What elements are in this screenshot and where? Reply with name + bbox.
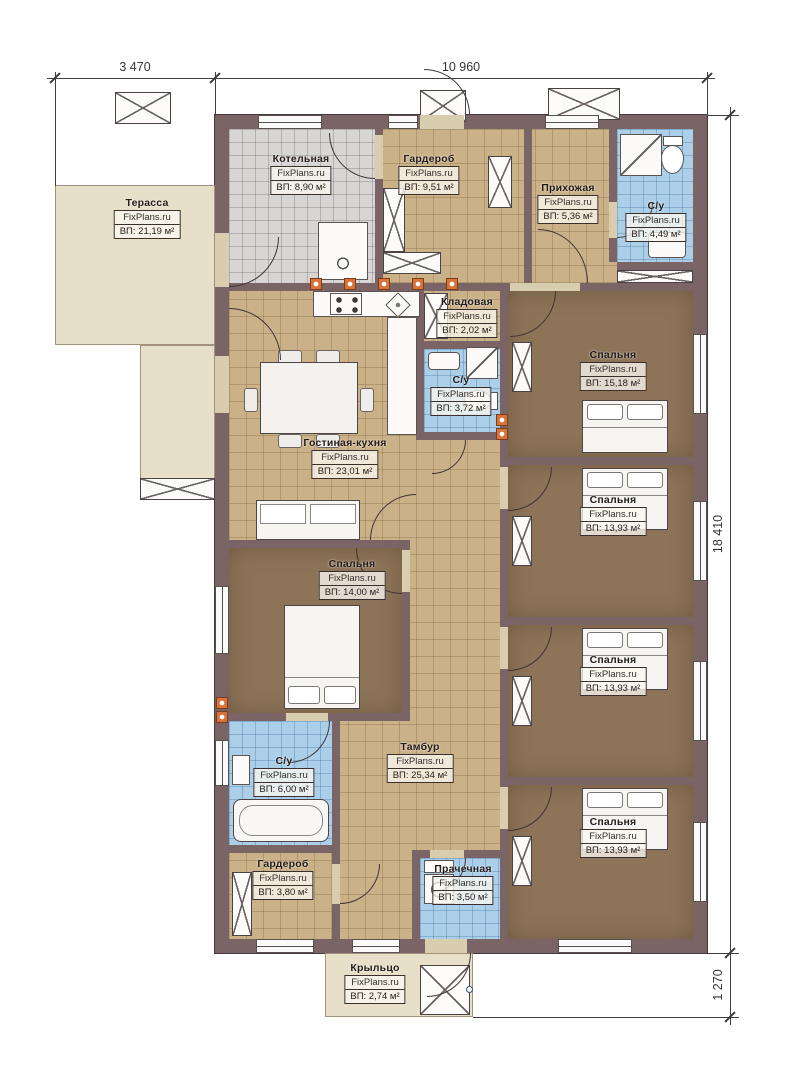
vent	[412, 278, 424, 290]
entry-door-arc-top	[424, 69, 470, 115]
door-opening	[500, 627, 508, 669]
dimension-label-porch-depth: 1 270	[711, 955, 725, 1015]
stove-icon	[330, 293, 362, 315]
closet	[488, 156, 512, 208]
watermark: FixPlans.ru	[320, 572, 385, 586]
vent	[216, 711, 228, 723]
dining-set	[244, 350, 374, 448]
sink-icon	[428, 352, 460, 370]
closet	[512, 342, 532, 392]
watermark: FixPlans.ru	[431, 388, 490, 402]
roof-symbol-left	[115, 92, 171, 124]
room-label-wardrobe-bottom: Гардероб FixPlans.ruВП: 3,80 м²	[252, 858, 313, 900]
room-label-bath-bottom: С/у FixPlans.ruВП: 6,00 м²	[253, 755, 314, 797]
watermark: FixPlans.ru	[581, 668, 646, 682]
door-opening	[430, 850, 464, 858]
door-opening	[375, 135, 383, 179]
closet	[617, 270, 693, 283]
room-label-bedroom-4: Спальня FixPlans.ruВП: 13,93 м²	[580, 816, 647, 858]
toilet-icon	[660, 136, 686, 176]
window	[693, 334, 707, 414]
room-label-bath-top: С/у FixPlans.ruВП: 4,49 м²	[625, 200, 686, 242]
dimension-line-top	[47, 78, 715, 79]
partition-wall	[508, 777, 693, 785]
door-opening	[420, 115, 464, 129]
extension-line	[55, 72, 56, 186]
window	[352, 939, 400, 953]
partition-wall	[332, 721, 340, 939]
boiler-unit	[318, 222, 368, 280]
vent	[496, 428, 508, 440]
vent	[310, 278, 322, 290]
shower-icon	[620, 134, 662, 176]
dimension-label-terrace-width: 3 470	[95, 60, 175, 74]
window	[558, 939, 632, 953]
window	[693, 501, 707, 581]
door-opening	[332, 864, 340, 904]
door-opening	[609, 202, 617, 238]
vent	[216, 697, 228, 709]
bed	[582, 400, 668, 453]
door-opening	[500, 467, 508, 509]
door-opening	[215, 356, 229, 413]
watermark: FixPlans.ru	[437, 310, 496, 324]
watermark: FixPlans.ru	[313, 451, 378, 465]
partition-wall	[229, 845, 332, 853]
kitchen-counter	[387, 317, 417, 435]
dimension-label-house-width: 10 960	[421, 60, 501, 74]
floor-plan: 3 470 10 960 18 410 1 270	[0, 0, 792, 1080]
watermark: FixPlans.ru	[399, 167, 458, 181]
chair	[244, 388, 258, 412]
room-label-pantry: Кладовая FixPlans.ruВП: 2,02 м²	[436, 296, 497, 338]
watermark: FixPlans.ru	[581, 508, 646, 522]
partition-wall	[617, 262, 693, 270]
watermark: FixPlans.ru	[345, 976, 404, 990]
vent	[496, 414, 508, 426]
sink-icon	[232, 755, 250, 785]
watermark: FixPlans.ru	[626, 214, 685, 228]
window	[693, 661, 707, 741]
partition-wall	[508, 457, 693, 465]
room-label-bedroom-left: Спальня FixPlans.ruВП: 14,00 м²	[319, 558, 386, 600]
partition-wall	[500, 291, 508, 939]
extension-line	[473, 1017, 739, 1018]
door-opening	[215, 233, 229, 287]
bed	[284, 605, 360, 709]
dimension-line-right	[730, 107, 731, 1025]
terrace-side-strip	[140, 345, 215, 500]
closet	[512, 676, 532, 726]
room-label-terrace: Терасса FixPlans.ruВП: 21,19 м²	[114, 197, 181, 239]
watermark: FixPlans.ru	[433, 877, 492, 891]
closet	[383, 188, 405, 252]
extension-line	[707, 115, 739, 116]
room-label-porch: Крыльцо FixPlans.ruВП: 2,74 м²	[344, 962, 405, 1004]
room-label-hallway: Прихожая FixPlans.ruВП: 5,36 м²	[537, 182, 598, 224]
window	[215, 740, 229, 786]
watermark: FixPlans.ru	[253, 872, 312, 886]
canopy-node	[466, 986, 473, 993]
vent	[344, 278, 356, 290]
room-label-living-kitchen: Гостиная-кухня FixPlans.ruВП: 23,01 м²	[303, 437, 386, 479]
room-label-bedroom-1: Спальня FixPlans.ruВП: 15,18 м²	[580, 349, 647, 391]
window	[256, 939, 314, 953]
window	[693, 822, 707, 902]
chair	[360, 388, 374, 412]
dimension-label-house-depth: 18 410	[711, 504, 725, 564]
window	[258, 115, 322, 129]
terrace-window-symbol	[140, 478, 215, 500]
partition-wall	[229, 283, 693, 291]
watermark: FixPlans.ru	[254, 769, 313, 783]
watermark: FixPlans.ru	[271, 167, 330, 181]
room-label-wardrobe-top: Гардероб FixPlans.ruВП: 9,51 м²	[398, 153, 459, 195]
vent	[378, 278, 390, 290]
vent	[446, 278, 458, 290]
partition-wall	[524, 129, 532, 287]
partition-wall	[412, 858, 420, 939]
sofa	[256, 500, 360, 540]
partition-wall	[508, 617, 693, 625]
closet	[232, 872, 252, 936]
watermark: FixPlans.ru	[538, 196, 597, 210]
window	[545, 115, 599, 129]
room-label-bath-mid: С/у FixPlans.ruВП: 3,72 м²	[430, 374, 491, 416]
dining-table	[260, 362, 358, 434]
window	[215, 586, 229, 654]
door-opening	[500, 787, 508, 829]
room-label-boiler: Котельная FixPlans.ruВП: 8,90 м²	[270, 153, 331, 195]
room-label-tambour: Тамбур FixPlans.ruВП: 25,34 м²	[387, 741, 454, 783]
room-label-laundry: Прачечная FixPlans.ruВП: 3,50 м²	[432, 863, 493, 905]
window	[388, 115, 418, 129]
door-opening	[425, 939, 467, 953]
watermark: FixPlans.ru	[388, 755, 453, 769]
chair	[278, 434, 302, 448]
watermark: FixPlans.ru	[581, 830, 646, 844]
door-opening	[536, 283, 580, 291]
bathtub	[233, 799, 329, 842]
extension-line	[707, 953, 739, 954]
door-opening	[286, 713, 328, 721]
room-label-bedroom-2: Спальня FixPlans.ruВП: 13,93 м²	[580, 494, 647, 536]
watermark: FixPlans.ru	[581, 363, 646, 377]
closet	[512, 516, 532, 566]
door-opening	[402, 550, 410, 592]
watermark: FixPlans.ru	[115, 211, 180, 225]
partition-wall	[229, 540, 410, 548]
closet	[383, 252, 441, 274]
room-label-bedroom-3: Спальня FixPlans.ruВП: 13,93 м²	[580, 654, 647, 696]
closet	[512, 836, 532, 886]
partition-wall	[609, 129, 617, 262]
partition-wall	[416, 432, 508, 440]
